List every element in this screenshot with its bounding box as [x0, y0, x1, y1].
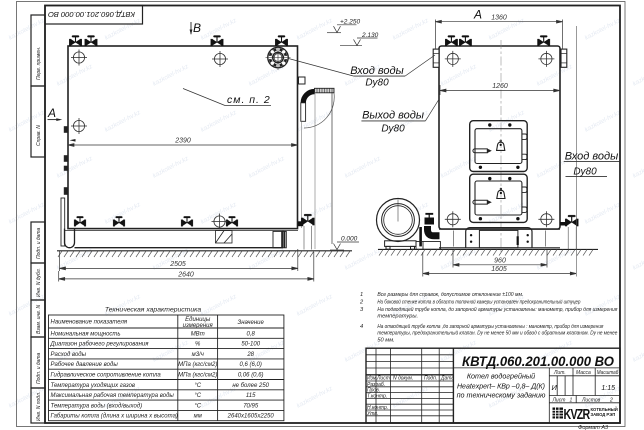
svg-text:kazkotel-hv.kz: kazkotel-hv.kz — [8, 17, 47, 42]
svg-text:kazkotel-hv.kz: kazkotel-hv.kz — [104, 293, 143, 318]
svg-text:Heatexpert– КВр –0,8– Д(К): Heatexpert– КВр –0,8– Д(К) — [457, 382, 545, 391]
svg-text:Утв.: Утв. — [367, 411, 378, 417]
svg-text:1605: 1605 — [491, 266, 507, 273]
svg-text:температуры.: температуры. — [377, 314, 418, 320]
svg-text:Дата: Дата — [440, 376, 454, 382]
svg-text:kazkotel-hv.kz: kazkotel-hv.kz — [104, 109, 143, 134]
svg-text:1360: 1360 — [491, 15, 507, 22]
svg-text:Dy80: Dy80 — [573, 167, 597, 178]
svg-text:Перв. примен.: Перв. примен. — [36, 47, 42, 80]
svg-text:kazkotel-hv.kz: kazkotel-hv.kz — [632, 155, 644, 180]
svg-text:И: И — [552, 383, 558, 392]
svg-text:115: 115 — [246, 393, 256, 399]
svg-text:°С: °С — [194, 403, 201, 409]
svg-text:kazkotel-hv.kz: kazkotel-hv.kz — [584, 293, 623, 318]
svg-text:Лист: Лист — [376, 376, 390, 382]
svg-text:kazkotel-hv.kz: kazkotel-hv.kz — [152, 63, 191, 88]
svg-text:Техническая характеристика: Техническая характеристика — [105, 307, 201, 314]
svg-text:МВт: МВт — [191, 331, 205, 337]
svg-text:Гидравлическое сопротивление к: Гидравлическое сопротивление котла — [51, 373, 162, 379]
svg-text:Температура воды (вход/выход): Температура воды (вход/выход) — [51, 403, 143, 409]
svg-text:kazkotel-hv.kz: kazkotel-hv.kz — [632, 339, 644, 364]
svg-text:КВТД.060.201.00.000 ВО: КВТД.060.201.00.000 ВО — [48, 10, 135, 19]
svg-text:мм: мм — [194, 414, 202, 420]
svg-text:Температура уходящих газов: Температура уходящих газов — [51, 383, 136, 389]
svg-text:Вход воды: Вход воды — [565, 150, 618, 162]
svg-text:Значение: Значение — [238, 320, 265, 326]
svg-text:kazkotel-hv.kz: kazkotel-hv.kz — [104, 17, 143, 42]
svg-text:0,6 (6,0): 0,6 (6,0) — [240, 362, 262, 368]
svg-text:kazkotel-hv.kz: kazkotel-hv.kz — [248, 63, 287, 88]
svg-text:Инв. N дубл.: Инв. N дубл. — [36, 268, 42, 297]
svg-text:°С: °С — [194, 383, 201, 389]
svg-text:Диапазон рабочего регулировани: Диапазон рабочего регулирования — [50, 342, 150, 348]
svg-text:kazkotel-hv.kz: kazkotel-hv.kz — [200, 109, 239, 134]
svg-text:kazkotel-hv.kz: kazkotel-hv.kz — [152, 155, 191, 180]
svg-text:Вход воды: Вход воды — [350, 65, 403, 77]
svg-text:kazkotel-hv.kz: kazkotel-hv.kz — [344, 155, 383, 180]
svg-text:1: 1 — [570, 397, 573, 403]
svg-text:Dy80: Dy80 — [381, 124, 405, 135]
svg-text:2640х1605х2250: 2640х1605х2250 — [227, 414, 275, 420]
svg-text:kazkotel-hv.kz: kazkotel-hv.kz — [632, 247, 644, 272]
svg-text:1:15: 1:15 — [601, 385, 615, 392]
svg-text:70/95: 70/95 — [243, 403, 259, 409]
svg-text:%: % — [195, 342, 201, 348]
svg-text:2: 2 — [609, 397, 613, 403]
svg-text:КВТД.060.201.00.000 ВО: КВТД.060.201.00.000 ВО — [462, 353, 614, 369]
svg-text:Лист: Лист — [552, 397, 566, 403]
svg-text:1: 1 — [360, 292, 363, 298]
svg-text:kazkotel-hv.kz: kazkotel-hv.kz — [56, 63, 95, 88]
svg-text:Dy80: Dy80 — [365, 78, 389, 89]
svg-text:1260: 1260 — [492, 83, 508, 90]
svg-text:Выход воды: Выход воды — [362, 110, 424, 122]
svg-text:KVZR: KVZR — [564, 407, 591, 423]
svg-text:измерения: измерения — [183, 323, 214, 329]
svg-text:Масса: Масса — [576, 370, 591, 376]
svg-text:Справ. N: Справ. N — [36, 125, 42, 146]
svg-text:kazkotel-hv.kz: kazkotel-hv.kz — [584, 201, 623, 226]
svg-text:3: 3 — [360, 307, 364, 313]
svg-text:kazkotel-hv.kz: kazkotel-hv.kz — [200, 17, 239, 42]
svg-text:kazkotel-hv.kz: kazkotel-hv.kz — [200, 293, 239, 318]
svg-text:Масштаб: Масштаб — [597, 370, 619, 376]
svg-text:ЗАВОД РЭП: ЗАВОД РЭП — [591, 412, 616, 417]
svg-text:температуры, предохранительный: температуры, предохранительный клапан. D… — [377, 330, 617, 337]
svg-text:Листов: Листов — [581, 397, 601, 403]
svg-text:На подводящей трубе котла, д: На подводящей трубе котла, до запорной а… — [377, 306, 617, 313]
svg-text:м3/ч: м3/ч — [192, 352, 204, 358]
svg-text:2: 2 — [359, 300, 364, 306]
svg-text:см. п. 2: см. п. 2 — [227, 94, 271, 106]
svg-text:2505: 2505 — [169, 261, 186, 268]
svg-text:kazkotel-hv.kz: kazkotel-hv.kz — [152, 339, 191, 364]
svg-text:kazkotel-hv.kz: kazkotel-hv.kz — [56, 155, 95, 180]
svg-text:Т.контр.: Т.контр. — [367, 394, 387, 400]
svg-text:Формат А3: Формат А3 — [578, 425, 609, 430]
svg-text:kazkotel-hv.kz: kazkotel-hv.kz — [392, 17, 431, 42]
svg-text:по техническому заданию: по техническому заданию — [457, 390, 546, 399]
svg-text:0,8: 0,8 — [247, 331, 256, 337]
svg-text:2390: 2390 — [174, 138, 191, 145]
svg-text:Габариты котла (длина х ширина: Габариты котла (длина х ширина х высота) — [51, 414, 178, 420]
svg-text:2640: 2640 — [177, 271, 194, 278]
svg-text:Подп.: Подп. — [424, 376, 437, 382]
svg-text:kazkotel-hv.kz: kazkotel-hv.kz — [440, 63, 479, 88]
svg-text:kazkotel-hv.kz: kazkotel-hv.kz — [584, 109, 623, 134]
svg-text:Расход воды: Расход воды — [51, 352, 87, 358]
svg-text:kazkotel-hv.kz: kazkotel-hv.kz — [248, 155, 287, 180]
svg-text:Номинальная мощность: Номинальная мощность — [51, 331, 121, 337]
svg-text:2.130: 2.130 — [361, 32, 379, 39]
svg-text:kazkotel-hv.kz: kazkotel-hv.kz — [584, 17, 623, 42]
svg-text:А: А — [473, 8, 482, 22]
svg-text:МПа (кгс/см2): МПа (кгс/см2) — [178, 373, 217, 379]
svg-text:kazkotel-hv.kz: kazkotel-hv.kz — [632, 63, 644, 88]
svg-text:kazkotel-hv.kz: kazkotel-hv.kz — [440, 155, 479, 180]
svg-text:°С: °С — [194, 393, 201, 399]
svg-text:kazkotel-hv.kz: kazkotel-hv.kz — [296, 17, 335, 42]
svg-text:Взам. инв. N: Взам. инв. N — [36, 304, 42, 334]
svg-text:kazkotel-hv.kz: kazkotel-hv.kz — [296, 385, 335, 410]
svg-text:kazkotel-hv.kz: kazkotel-hv.kz — [296, 293, 335, 318]
svg-text:Максимальная рабочая температу: Максимальная рабочая температура воды — [51, 393, 175, 399]
svg-text:Подп. и дата: Подп. и дата — [36, 227, 42, 259]
svg-text:На отводящей трубе котла ,до з: На отводящей трубе котла ,до запорной ар… — [377, 323, 603, 330]
svg-text:kazkotel-hv.kz: kazkotel-hv.kz — [392, 385, 431, 410]
svg-text:960: 960 — [494, 257, 506, 264]
svg-text:Рабочее давление воды: Рабочее давление воды — [51, 362, 119, 368]
svg-text:50-100: 50-100 — [241, 342, 260, 348]
svg-text:На боковой стенке котла в обла: На боковой стенке котла в области топочн… — [377, 299, 580, 306]
svg-text:Все размеры для справок, допус: Все размеры для справок, допустимое откл… — [377, 292, 523, 298]
svg-text:4: 4 — [360, 324, 363, 330]
svg-text:Наименование показателя: Наименование показателя — [51, 320, 128, 326]
svg-text:0.000: 0.000 — [341, 236, 358, 243]
svg-text:Инв. N подл.: Инв. N подл. — [36, 392, 42, 421]
svg-text:Подп. и дата: Подп. и дата — [36, 352, 42, 384]
svg-text:МПа (кгс/см2): МПа (кгс/см2) — [178, 362, 217, 368]
svg-text:N докум.: N докум. — [393, 376, 413, 382]
svg-text:Котел водогрейный: Котел водогрейный — [467, 371, 535, 380]
svg-text:kazkotel-hv.kz: kazkotel-hv.kz — [200, 201, 239, 226]
svg-text:kazkotel-hv.kz: kazkotel-hv.kz — [536, 63, 575, 88]
svg-text:В: В — [193, 21, 201, 35]
svg-text:0,06 (0,6): 0,06 (0,6) — [238, 373, 264, 379]
svg-text:А: А — [47, 106, 56, 120]
svg-text:50 мм.: 50 мм. — [377, 337, 394, 343]
svg-text:28: 28 — [246, 352, 254, 358]
svg-text:Лит.: Лит. — [553, 370, 566, 376]
svg-text:не более 250: не более 250 — [232, 383, 269, 389]
svg-text:+2.250: +2.250 — [340, 19, 360, 26]
